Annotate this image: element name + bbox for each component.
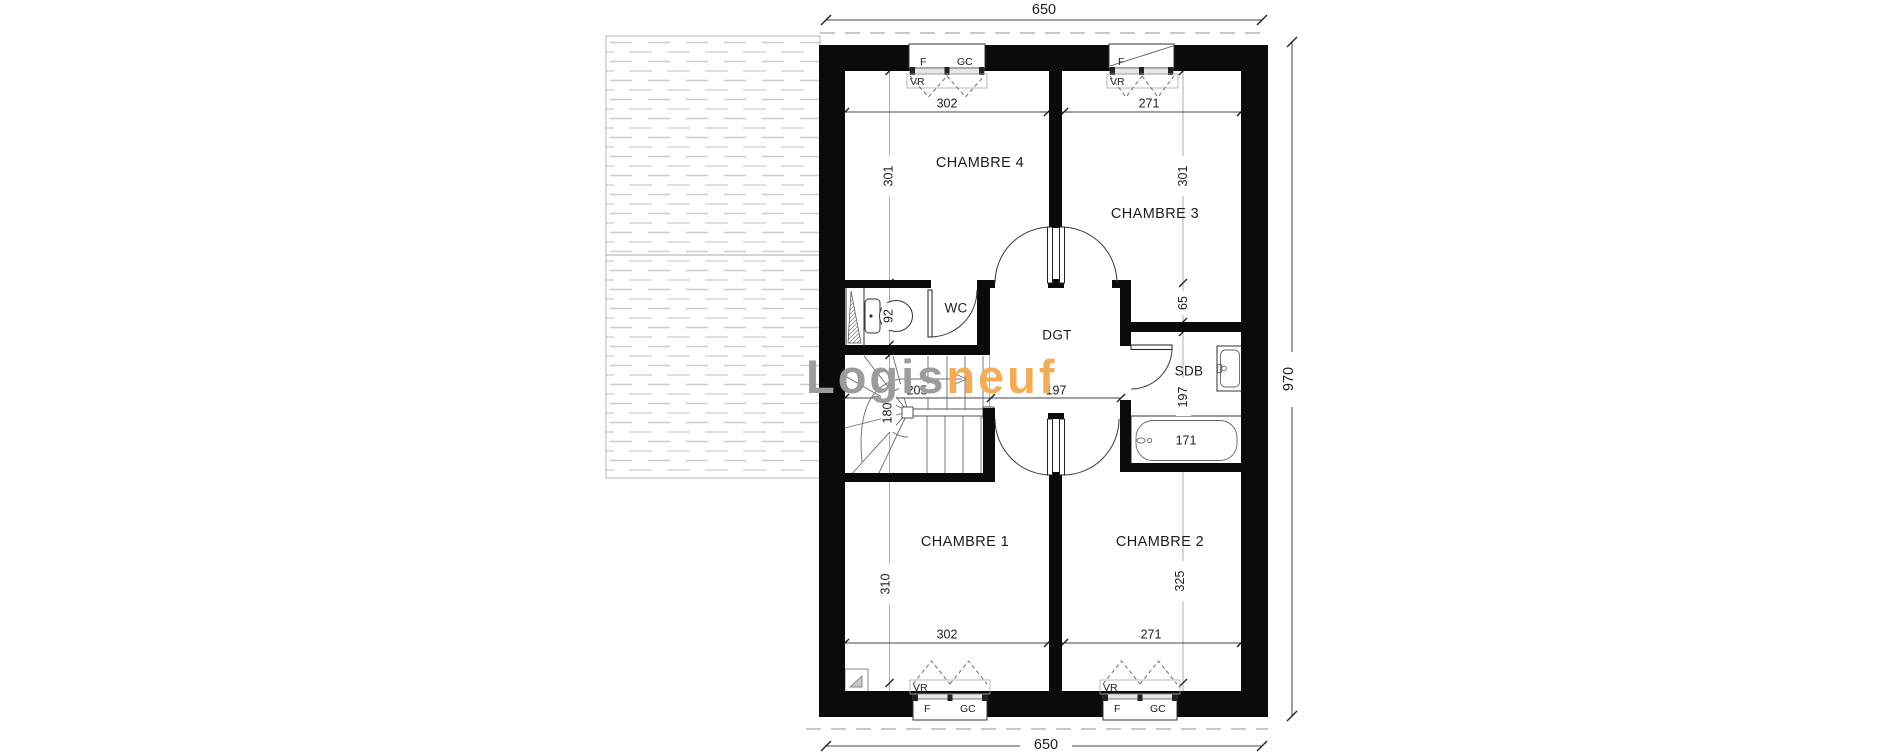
window-label-f: F bbox=[1114, 703, 1120, 715]
window-bottom-left: F GC VR bbox=[910, 661, 990, 720]
door-arc-sdb bbox=[1131, 348, 1172, 389]
room-label-dgt: DGT bbox=[1042, 328, 1071, 343]
dim-chambre3-height: 301 bbox=[1176, 166, 1190, 187]
window-label-gc: GC bbox=[957, 56, 973, 68]
wall-sdb-bottom bbox=[1120, 463, 1243, 472]
dim-sdb-offset: 65 bbox=[1176, 296, 1190, 310]
dim-chambre3-width: 271 bbox=[1139, 96, 1160, 110]
watermark-orange: neuf bbox=[946, 350, 1057, 403]
roof-surface bbox=[606, 36, 820, 478]
wall-stairs-bottom bbox=[819, 473, 995, 482]
dim-sdb-height: 197 bbox=[1176, 387, 1190, 408]
wall-exterior-bottom bbox=[819, 691, 1268, 717]
window-label-f: F bbox=[924, 703, 930, 715]
shutter-label-vr: VR bbox=[1110, 76, 1125, 88]
roof-hatch-area bbox=[606, 36, 820, 478]
shutter-label-vr: VR bbox=[1103, 682, 1118, 694]
stair-handrail bbox=[905, 409, 990, 416]
stair-newel-post bbox=[902, 407, 913, 418]
door-leaf-chambre2 bbox=[1060, 419, 1065, 475]
window-bottom-right: F GC VR bbox=[1100, 661, 1180, 720]
casement-swing-left bbox=[913, 661, 950, 684]
attic-trap-icon bbox=[845, 669, 868, 693]
door-arc-chambre1 bbox=[995, 419, 1051, 475]
dim-overall-width-top: 650 bbox=[1032, 2, 1056, 18]
door-leaf-wc bbox=[928, 290, 932, 337]
door-arc-chambre4 bbox=[995, 227, 1051, 283]
dim-chambre1-width: 302 bbox=[937, 627, 958, 641]
casement-swing-right bbox=[1140, 661, 1177, 684]
dim-chambre1-height: 310 bbox=[878, 574, 892, 595]
dim-chambre2-height: 325 bbox=[1173, 571, 1187, 592]
wall-sdb-left-lower bbox=[1120, 400, 1131, 472]
window-label-f: F bbox=[920, 56, 926, 68]
dim-chambre4-width: 302 bbox=[937, 96, 958, 110]
door-leaf-chambre3 bbox=[1060, 227, 1065, 283]
watermark-gray: Logis bbox=[806, 350, 946, 403]
wall-exterior-top bbox=[819, 45, 1268, 71]
door-leaf-chambre4 bbox=[1048, 227, 1053, 283]
window-top-left: F GC VR bbox=[907, 44, 987, 97]
washbasin-icon bbox=[1217, 346, 1243, 391]
door-arc-chambre2 bbox=[1063, 419, 1119, 475]
room-label-sdb: SDB bbox=[1175, 364, 1204, 379]
dim-wc-height: 92 bbox=[881, 309, 895, 323]
window-top-right: F VR bbox=[1107, 44, 1178, 97]
wall-exterior-right bbox=[1241, 45, 1268, 717]
wall-chambre3-bottom bbox=[1120, 322, 1243, 332]
casement-swing-right bbox=[1142, 76, 1174, 97]
casement-swing-right bbox=[947, 76, 984, 97]
shutter-label-vr: VR bbox=[910, 76, 925, 88]
dim-overall-height: 970 bbox=[1281, 367, 1297, 391]
window-label-f: F bbox=[1118, 56, 1124, 68]
dim-overall-width-bottom: 650 bbox=[1034, 737, 1058, 753]
floor-plan-drawing: F GC VR F VR F GC VR F GC VR bbox=[0, 0, 1900, 754]
wall-wc-right bbox=[977, 280, 990, 346]
shutter-label-vr: VR bbox=[913, 682, 928, 694]
dim-bath-length: 171 bbox=[1176, 433, 1197, 447]
dim-chambre2-width: 271 bbox=[1141, 627, 1162, 641]
door-leaf-sdb bbox=[1131, 345, 1172, 350]
door-leaf-chambre1 bbox=[1048, 419, 1053, 475]
window-label-gc: GC bbox=[1150, 703, 1166, 715]
room-label-wc: WC bbox=[944, 301, 967, 316]
room-label-chambre4: CHAMBRE 4 bbox=[936, 155, 1024, 171]
wall-stairs-right bbox=[983, 408, 995, 481]
wall-chambre3-chambre4 bbox=[1049, 71, 1062, 228]
window-label-gc: GC bbox=[960, 703, 976, 715]
watermark-logo: Logisneuf bbox=[806, 350, 1058, 403]
floor-plan-page: F GC VR F VR F GC VR F GC VR bbox=[0, 0, 1900, 754]
wall-chambre1-chambre2 bbox=[1049, 472, 1062, 691]
door-arc-chambre3 bbox=[1061, 227, 1117, 283]
wall-sdb-left-upper bbox=[1120, 280, 1131, 346]
casement-swing-left bbox=[1103, 661, 1140, 684]
dim-stairs-width: 180 bbox=[880, 403, 894, 424]
wall-wc-top bbox=[845, 280, 931, 288]
room-label-chambre2: CHAMBRE 2 bbox=[1116, 534, 1204, 550]
room-label-chambre1: CHAMBRE 1 bbox=[921, 534, 1009, 550]
casement-swing-right bbox=[950, 661, 987, 684]
room-label-chambre3: CHAMBRE 3 bbox=[1111, 206, 1199, 222]
dim-chambre4-height: 301 bbox=[881, 166, 895, 187]
